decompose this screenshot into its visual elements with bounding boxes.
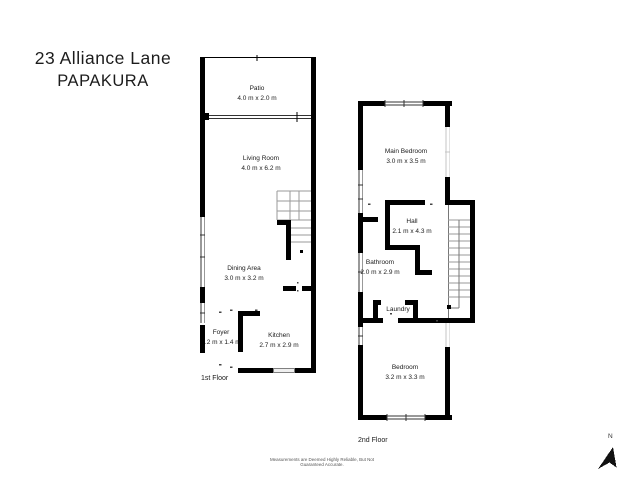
north-label: N: [608, 433, 613, 440]
room-label-hall: Hall 2.1 m x 4.3 m: [367, 217, 457, 237]
room-label-dining-area: Dining Area 3.0 m x 3.2 m: [199, 264, 289, 284]
disclaimer-text: Measurements are Deemed Highly Reliable,…: [266, 457, 378, 467]
room-name: Kitchen: [234, 331, 324, 341]
room-label-kitchen: Kitchen 2.7 m x 2.9 m: [234, 331, 324, 351]
room-dims: 3.2 m x 3.3 m: [360, 373, 450, 383]
room-name: Dining Area: [199, 264, 289, 274]
room-dims: 2.0 m x 2.9 m: [335, 268, 425, 278]
floor-plan-page: 23 Alliance Lane PAPAKURA Patio 4.0 m x …: [0, 0, 640, 480]
first-floor-label: 1st Floor: [201, 374, 228, 383]
room-name: Main Bedroom: [361, 147, 451, 157]
room-label-bathroom: Bathroom 2.0 m x 2.9 m: [335, 258, 425, 278]
room-dims: 3.0 m x 3.5 m: [361, 157, 451, 167]
room-label-bedroom: Bedroom 3.2 m x 3.3 m: [360, 363, 450, 383]
property-city: PAPAKURA: [18, 70, 188, 92]
property-title: 23 Alliance Lane PAPAKURA: [18, 46, 188, 92]
second-floor-label: 2nd Floor: [358, 436, 388, 445]
room-dims: 4.0 m x 2.0 m: [212, 94, 302, 104]
room-dims: 2.1 m x 4.3 m: [367, 227, 457, 237]
room-dims: 2.7 m x 2.9 m: [234, 341, 324, 351]
room-name: Bathroom: [335, 258, 425, 268]
room-name: Laundry: [353, 305, 443, 315]
property-address: 23 Alliance Lane: [18, 46, 188, 70]
room-label-patio: Patio 4.0 m x 2.0 m: [212, 84, 302, 104]
room-label-main-bedroom: Main Bedroom 3.0 m x 3.5 m: [361, 147, 451, 167]
room-name: Bedroom: [360, 363, 450, 373]
room-name: Hall: [367, 217, 457, 227]
room-dims: 3.0 m x 3.2 m: [199, 274, 289, 284]
room-name: Patio: [212, 84, 302, 94]
room-dims: 4.0 m x 6.2 m: [216, 164, 306, 174]
room-name: Living Room: [216, 154, 306, 164]
room-label-living-room: Living Room 4.0 m x 6.2 m: [216, 154, 306, 174]
room-label-laundry: Laundry: [353, 305, 443, 315]
